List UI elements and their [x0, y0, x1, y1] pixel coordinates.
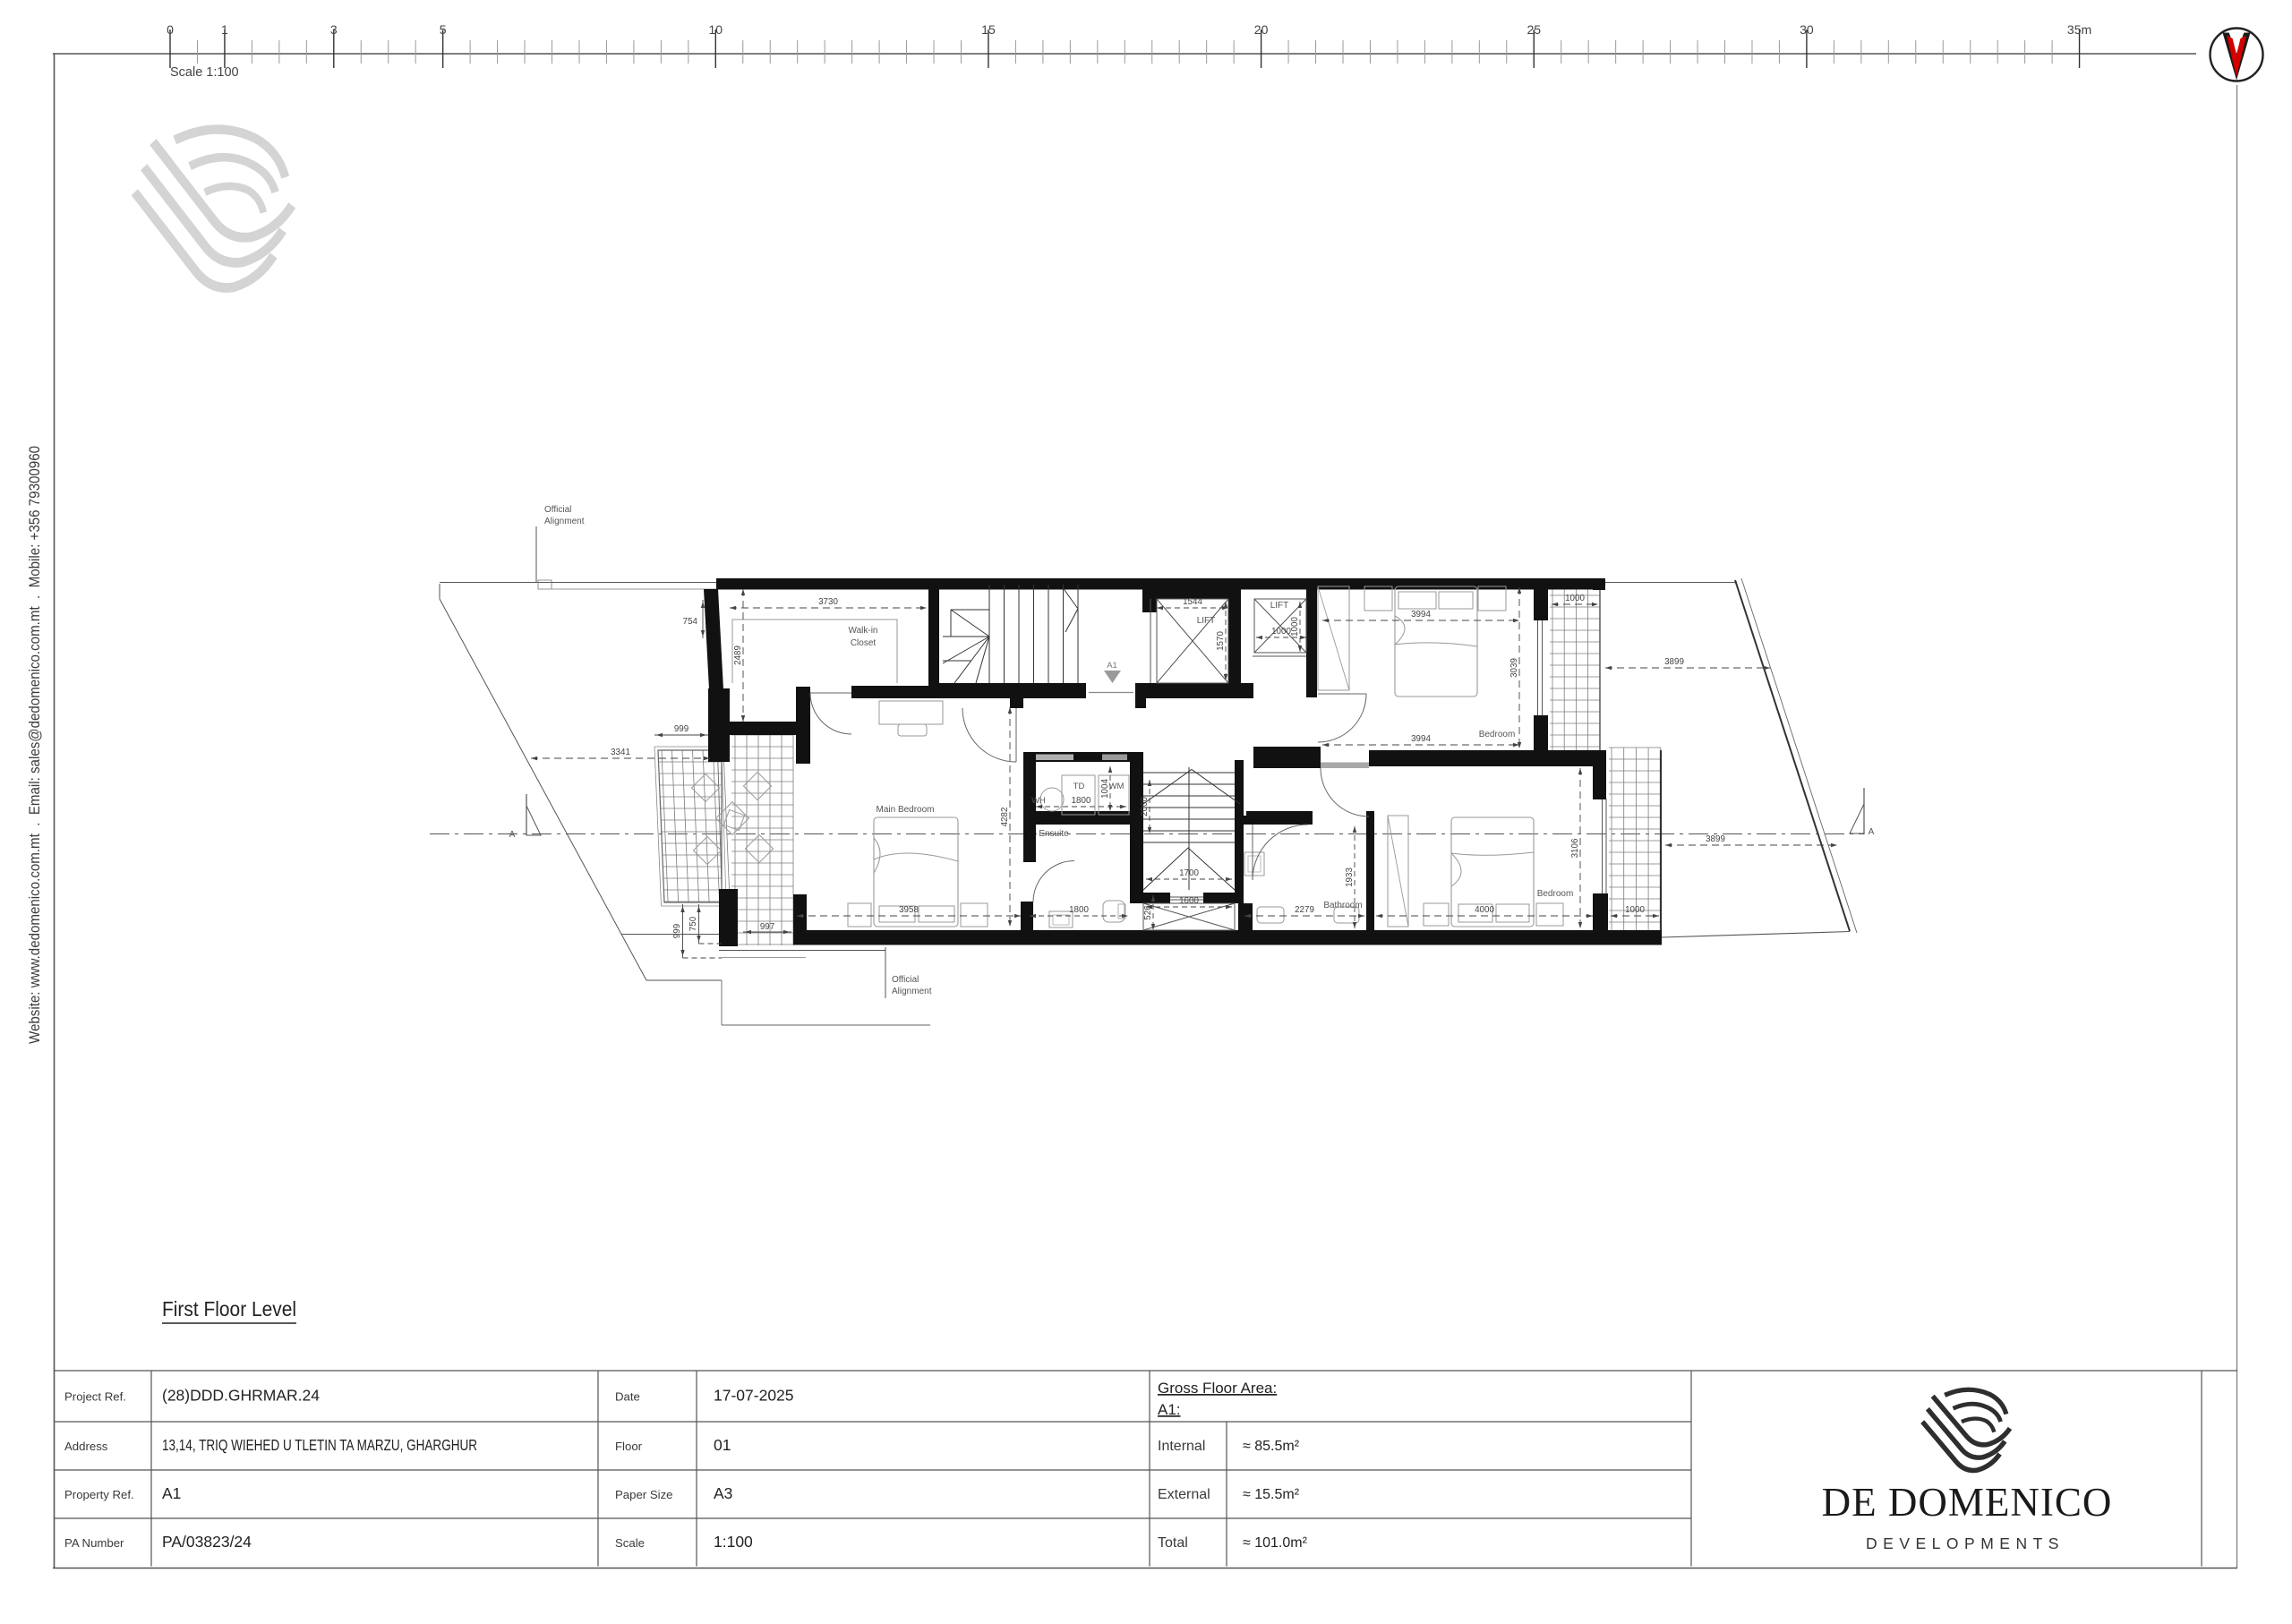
- svg-text:5: 5: [440, 22, 447, 37]
- svg-text:Address: Address: [64, 1440, 108, 1453]
- svg-text:2489: 2489: [733, 645, 743, 665]
- svg-text:Total: Total: [1158, 1535, 1188, 1551]
- svg-text:1:100: 1:100: [714, 1533, 753, 1551]
- svg-text:DEVELOPMENTS: DEVELOPMENTS: [1866, 1534, 2065, 1552]
- svg-text:3899: 3899: [1664, 657, 1684, 667]
- svg-text:0: 0: [167, 22, 174, 37]
- svg-text:1000: 1000: [1271, 627, 1291, 637]
- svg-text:1800: 1800: [1069, 905, 1089, 915]
- svg-text:External: External: [1158, 1487, 1210, 1502]
- svg-text:3994: 3994: [1411, 734, 1431, 744]
- svg-text:754: 754: [683, 617, 698, 627]
- svg-text:01: 01: [714, 1436, 731, 1454]
- svg-text:WM: WM: [1109, 782, 1125, 791]
- svg-text:WH: WH: [1031, 796, 1046, 806]
- svg-text:30: 30: [1800, 22, 1814, 37]
- svg-text:10: 10: [709, 22, 723, 37]
- svg-text:Bedroom: Bedroom: [1479, 730, 1516, 739]
- svg-text:1: 1: [221, 22, 228, 37]
- svg-text:1004: 1004: [1100, 779, 1110, 799]
- svg-text:1000: 1000: [1565, 594, 1585, 603]
- svg-text:A: A: [509, 830, 516, 840]
- svg-text:3106: 3106: [1570, 838, 1580, 858]
- svg-text:≈ 15.5m²: ≈ 15.5m²: [1243, 1487, 1300, 1502]
- svg-text:750: 750: [688, 916, 698, 931]
- svg-text:Main Bedroom: Main Bedroom: [876, 805, 934, 815]
- svg-text:Official: Official: [544, 505, 571, 515]
- svg-text:13,14, TRIQ WIEHED U TLETIN TA: 13,14, TRIQ WIEHED U TLETIN TA MARZU, GH…: [162, 1436, 477, 1454]
- svg-text:3730: 3730: [818, 597, 838, 607]
- svg-text:PA Number: PA Number: [64, 1536, 124, 1550]
- svg-text:A: A: [1869, 827, 1875, 837]
- svg-text:4282: 4282: [1000, 808, 1010, 827]
- svg-text:1544: 1544: [1183, 597, 1202, 607]
- svg-text:Ensuite: Ensuite: [1039, 829, 1069, 839]
- svg-text:1933: 1933: [1345, 868, 1355, 887]
- svg-text:(28)DDD.GHRMAR.24: (28)DDD.GHRMAR.24: [162, 1387, 320, 1405]
- svg-text:15: 15: [981, 22, 996, 37]
- svg-text:DE DOMENICO: DE DOMENICO: [1822, 1480, 2113, 1525]
- svg-text:Property Ref.: Property Ref.: [64, 1488, 134, 1501]
- svg-text:999: 999: [672, 924, 682, 938]
- svg-text:997: 997: [760, 922, 774, 932]
- svg-text:A1: A1: [162, 1484, 181, 1502]
- svg-text:Closet: Closet: [851, 638, 877, 648]
- svg-text:Alignment: Alignment: [892, 987, 932, 996]
- svg-text:Bedroom: Bedroom: [1537, 889, 1574, 899]
- svg-text:Floor: Floor: [615, 1440, 643, 1453]
- svg-text:1600: 1600: [1179, 896, 1199, 906]
- svg-text:3899: 3899: [1706, 834, 1725, 844]
- svg-text:3994: 3994: [1411, 610, 1431, 620]
- svg-text:Website: www.dedomenico.com.mt: Website: www.dedomenico.com.mt . Email: …: [27, 446, 43, 1044]
- svg-text:Alignment: Alignment: [544, 517, 585, 526]
- svg-text:25: 25: [1527, 22, 1541, 37]
- svg-text:1800: 1800: [1072, 796, 1091, 806]
- svg-text:1000: 1000: [1290, 617, 1300, 637]
- svg-text:3039: 3039: [1509, 658, 1519, 678]
- svg-text:20: 20: [1254, 22, 1269, 37]
- svg-text:Walk-in: Walk-in: [849, 626, 878, 636]
- svg-text:3958: 3958: [899, 905, 919, 915]
- svg-text:3: 3: [330, 22, 338, 37]
- svg-text:1570: 1570: [1216, 631, 1226, 651]
- svg-text:Official: Official: [892, 975, 919, 985]
- svg-text:Project Ref.: Project Ref.: [64, 1390, 126, 1404]
- svg-text:Internal: Internal: [1158, 1439, 1205, 1454]
- svg-text:1700: 1700: [1179, 868, 1199, 878]
- svg-text:Bathroom: Bathroom: [1323, 901, 1362, 910]
- svg-text:LIFT: LIFT: [1197, 616, 1216, 626]
- svg-text:Scale: Scale: [615, 1536, 645, 1550]
- svg-text:2000: 2000: [1140, 797, 1150, 816]
- svg-text:1000: 1000: [1625, 905, 1645, 915]
- svg-text:A1:: A1:: [1158, 1401, 1181, 1418]
- svg-text:A3: A3: [714, 1484, 732, 1502]
- svg-text:First Floor Level: First Floor Level: [162, 1297, 296, 1321]
- svg-text:Scale 1:100: Scale 1:100: [170, 65, 239, 80]
- svg-text:35m: 35m: [2067, 22, 2091, 37]
- svg-text:TD: TD: [1073, 782, 1085, 791]
- svg-text:LIFT: LIFT: [1270, 601, 1289, 611]
- svg-text:≈ 101.0m²: ≈ 101.0m²: [1243, 1535, 1308, 1551]
- svg-text:≈ 85.5m²: ≈ 85.5m²: [1243, 1439, 1300, 1454]
- svg-text:17-07-2025: 17-07-2025: [714, 1387, 794, 1405]
- svg-text:Gross Floor Area:: Gross Floor Area:: [1158, 1380, 1277, 1397]
- svg-text:Paper Size: Paper Size: [615, 1488, 673, 1501]
- svg-text:Date: Date: [615, 1390, 640, 1404]
- svg-text:2279: 2279: [1295, 905, 1314, 915]
- svg-text:4000: 4000: [1475, 905, 1494, 915]
- svg-text:3341: 3341: [611, 748, 630, 757]
- svg-text:999: 999: [674, 724, 688, 734]
- svg-text:A1: A1: [1107, 661, 1117, 671]
- svg-text:PA/03823/24: PA/03823/24: [162, 1533, 252, 1551]
- svg-text:526: 526: [1143, 905, 1153, 920]
